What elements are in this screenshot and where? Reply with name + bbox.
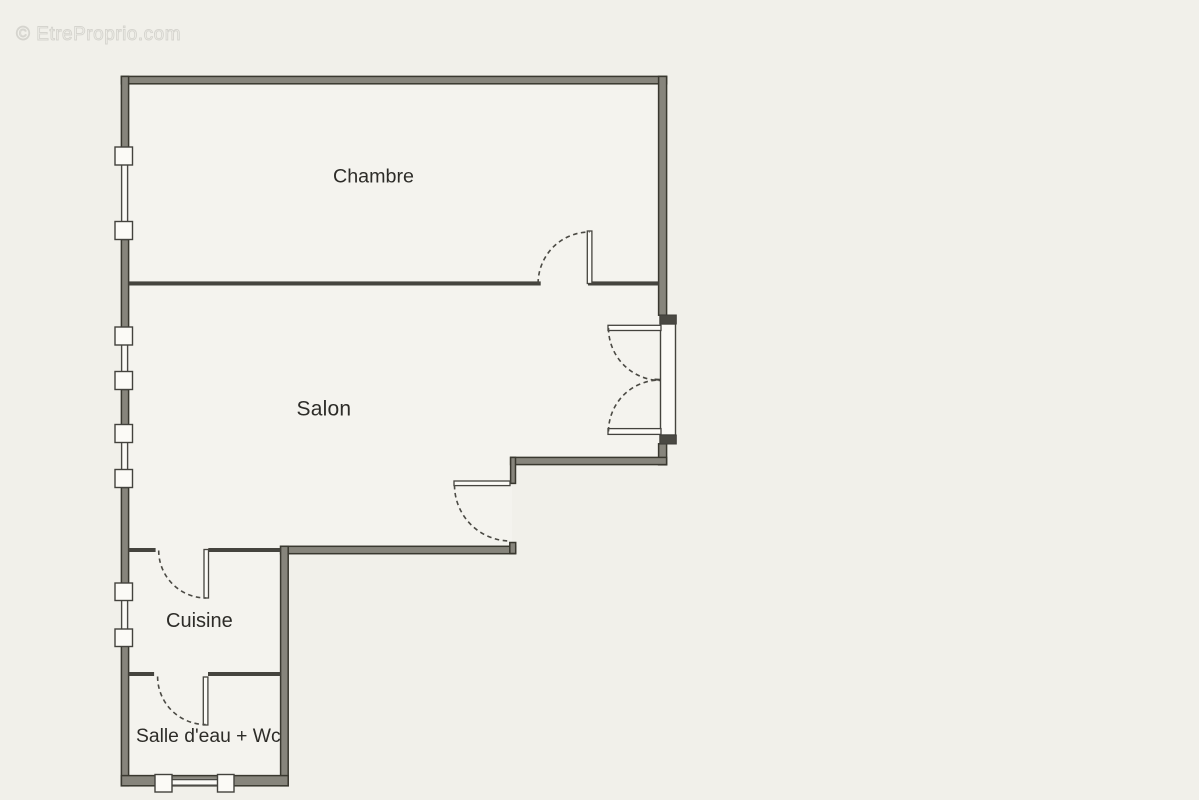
svg-text:Salle d'eau + Wc: Salle d'eau + Wc [136, 726, 281, 747]
svg-text:© EtreProprio.com: © EtreProprio.com [16, 24, 181, 45]
svg-text:Chambre: Chambre [333, 166, 414, 188]
svg-text:Cuisine: Cuisine [166, 610, 233, 632]
svg-text:Salon: Salon [297, 398, 352, 421]
